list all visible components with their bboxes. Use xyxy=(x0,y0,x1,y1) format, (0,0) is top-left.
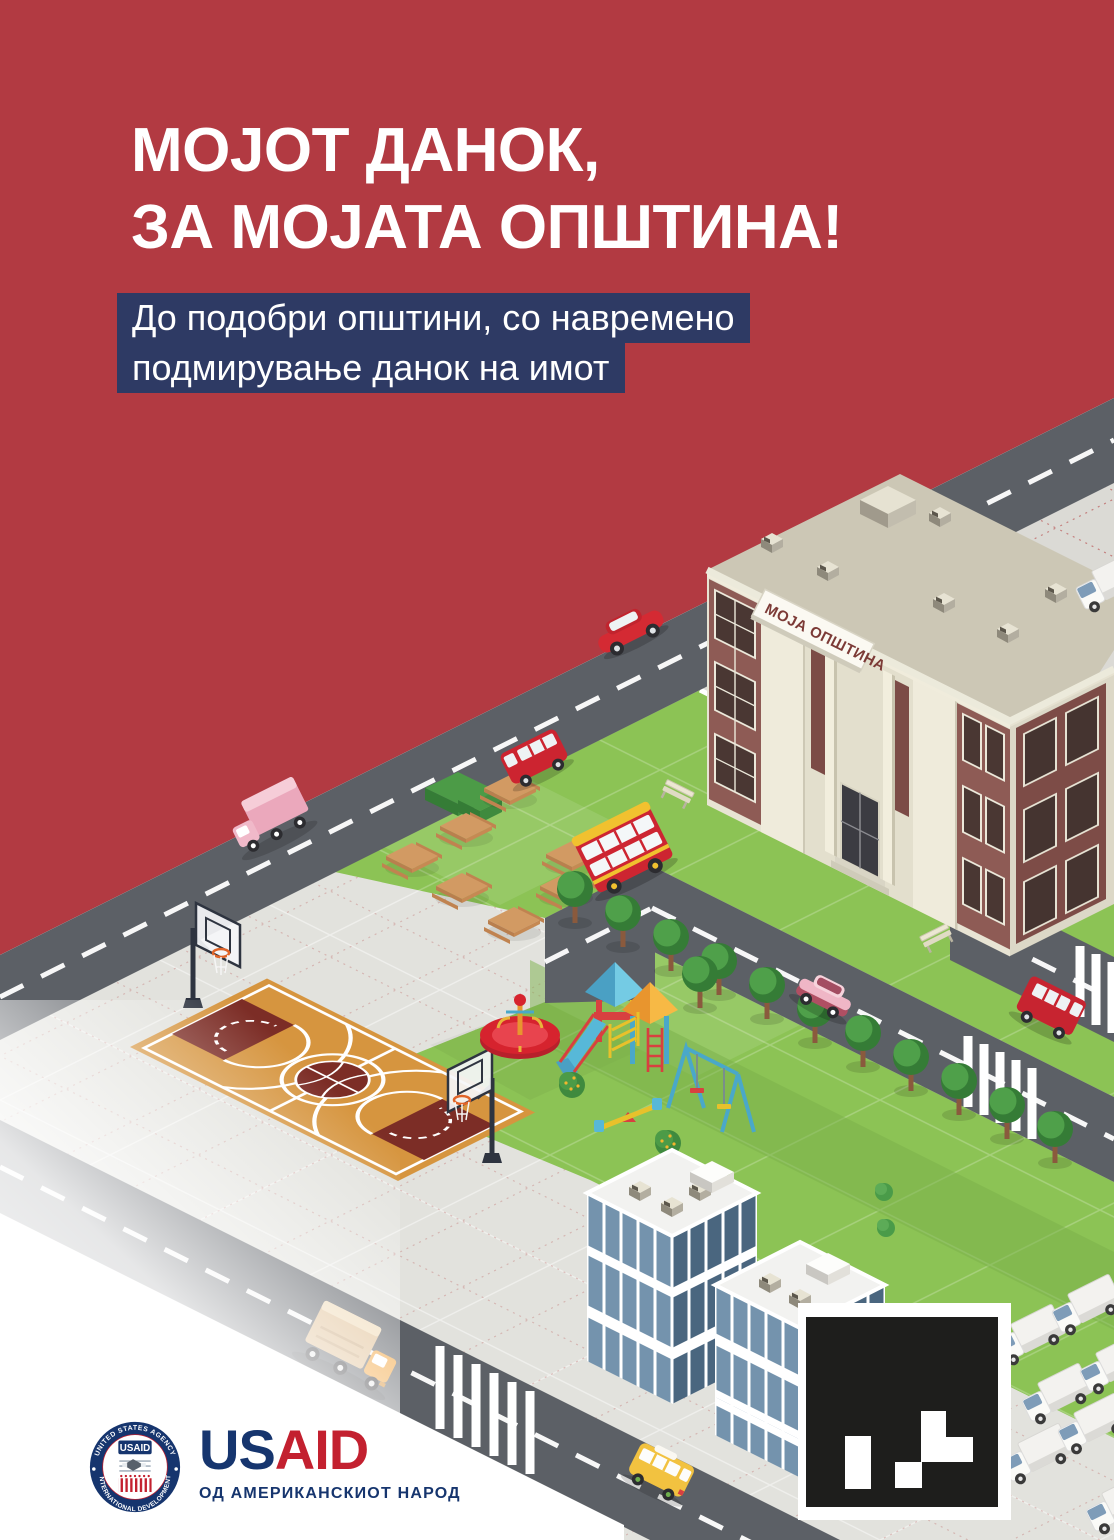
title-line-2: ЗА МОЈАТА ОПШТИНА! xyxy=(131,189,843,266)
usaid-logo: UNITED STATES AGENCY INTERNATIONAL DEVEL… xyxy=(86,1418,461,1516)
usaid-tagline: ОД АМЕРИКАНСКИОТ НАРОД xyxy=(199,1485,461,1503)
usaid-wordmark: USAID xyxy=(199,1422,461,1478)
usaid-wordmark-aid: AID xyxy=(275,1418,368,1481)
poster-title: МОЈОТ ДАНОК, ЗА МОЈАТА ОПШТИНА! xyxy=(131,112,843,266)
qr-marker xyxy=(798,1303,1011,1520)
usaid-seal: UNITED STATES AGENCY INTERNATIONAL DEVEL… xyxy=(86,1418,184,1516)
subtitle-banner-line-1: До подобри општини, со навремено xyxy=(117,293,750,343)
qr-marker-black-square xyxy=(806,1317,998,1507)
subtitle-banner-line-2: подмирување данок на имот xyxy=(117,343,625,393)
poster-page: МОЈА ОПШТИНА xyxy=(0,0,1114,1540)
title-line-1: МОЈОТ ДАНОК, xyxy=(131,112,843,189)
seal-center-label: USAID xyxy=(120,1443,150,1454)
usaid-wordmark-us: US xyxy=(199,1418,275,1481)
usaid-text: USAID ОД АМЕРИКАНСКИОТ НАРОД xyxy=(199,1418,461,1503)
